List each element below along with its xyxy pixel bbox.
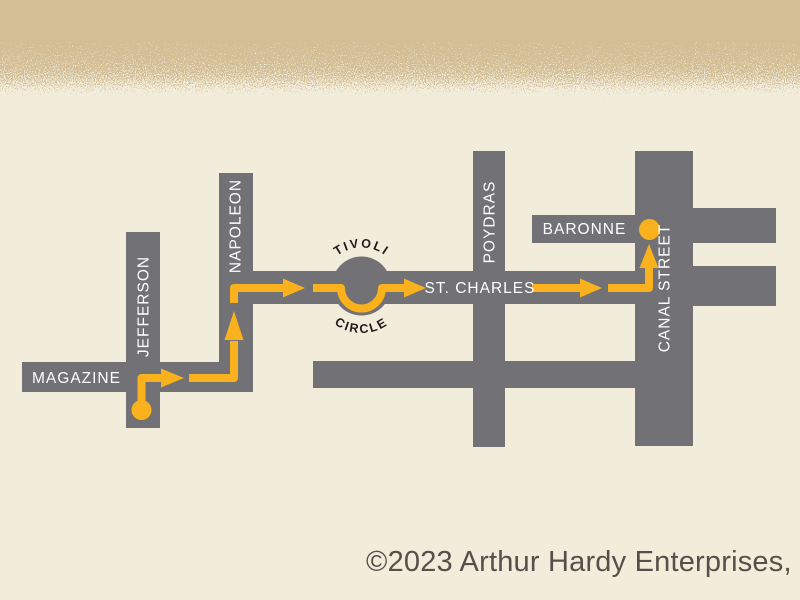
label-st-charles: ST. CHARLES — [425, 280, 536, 297]
label-baronne: BARONNE — [543, 221, 627, 238]
street-lower-cross — [313, 361, 637, 388]
header-band-solid — [0, 0, 800, 42]
street-baronne-east — [690, 208, 776, 243]
route-start-dot — [132, 400, 152, 420]
label-magazine: MAGAZINE — [32, 370, 121, 387]
header-band — [0, 0, 800, 124]
label-napoleon: NAPOLEON — [228, 179, 245, 273]
header-band-speckle — [0, 38, 800, 124]
copyright-text: ©2023 Arthur Hardy Enterprises, — [366, 546, 792, 579]
label-circle: CIRCLE — [332, 315, 390, 337]
label-poydras: POYDRAS — [482, 181, 499, 264]
map-canvas: MAGAZINE JEFFERSON NAPOLEON ST. CHARLES … — [0, 0, 800, 600]
parade-route-map: MAGAZINE JEFFERSON NAPOLEON ST. CHARLES … — [0, 0, 800, 600]
label-tivoli: TIVOLI — [331, 236, 392, 258]
label-canal-street: CANAL STREET — [657, 224, 674, 353]
label-jefferson: JEFFERSON — [136, 256, 153, 357]
street-st-charles-east — [690, 266, 776, 306]
